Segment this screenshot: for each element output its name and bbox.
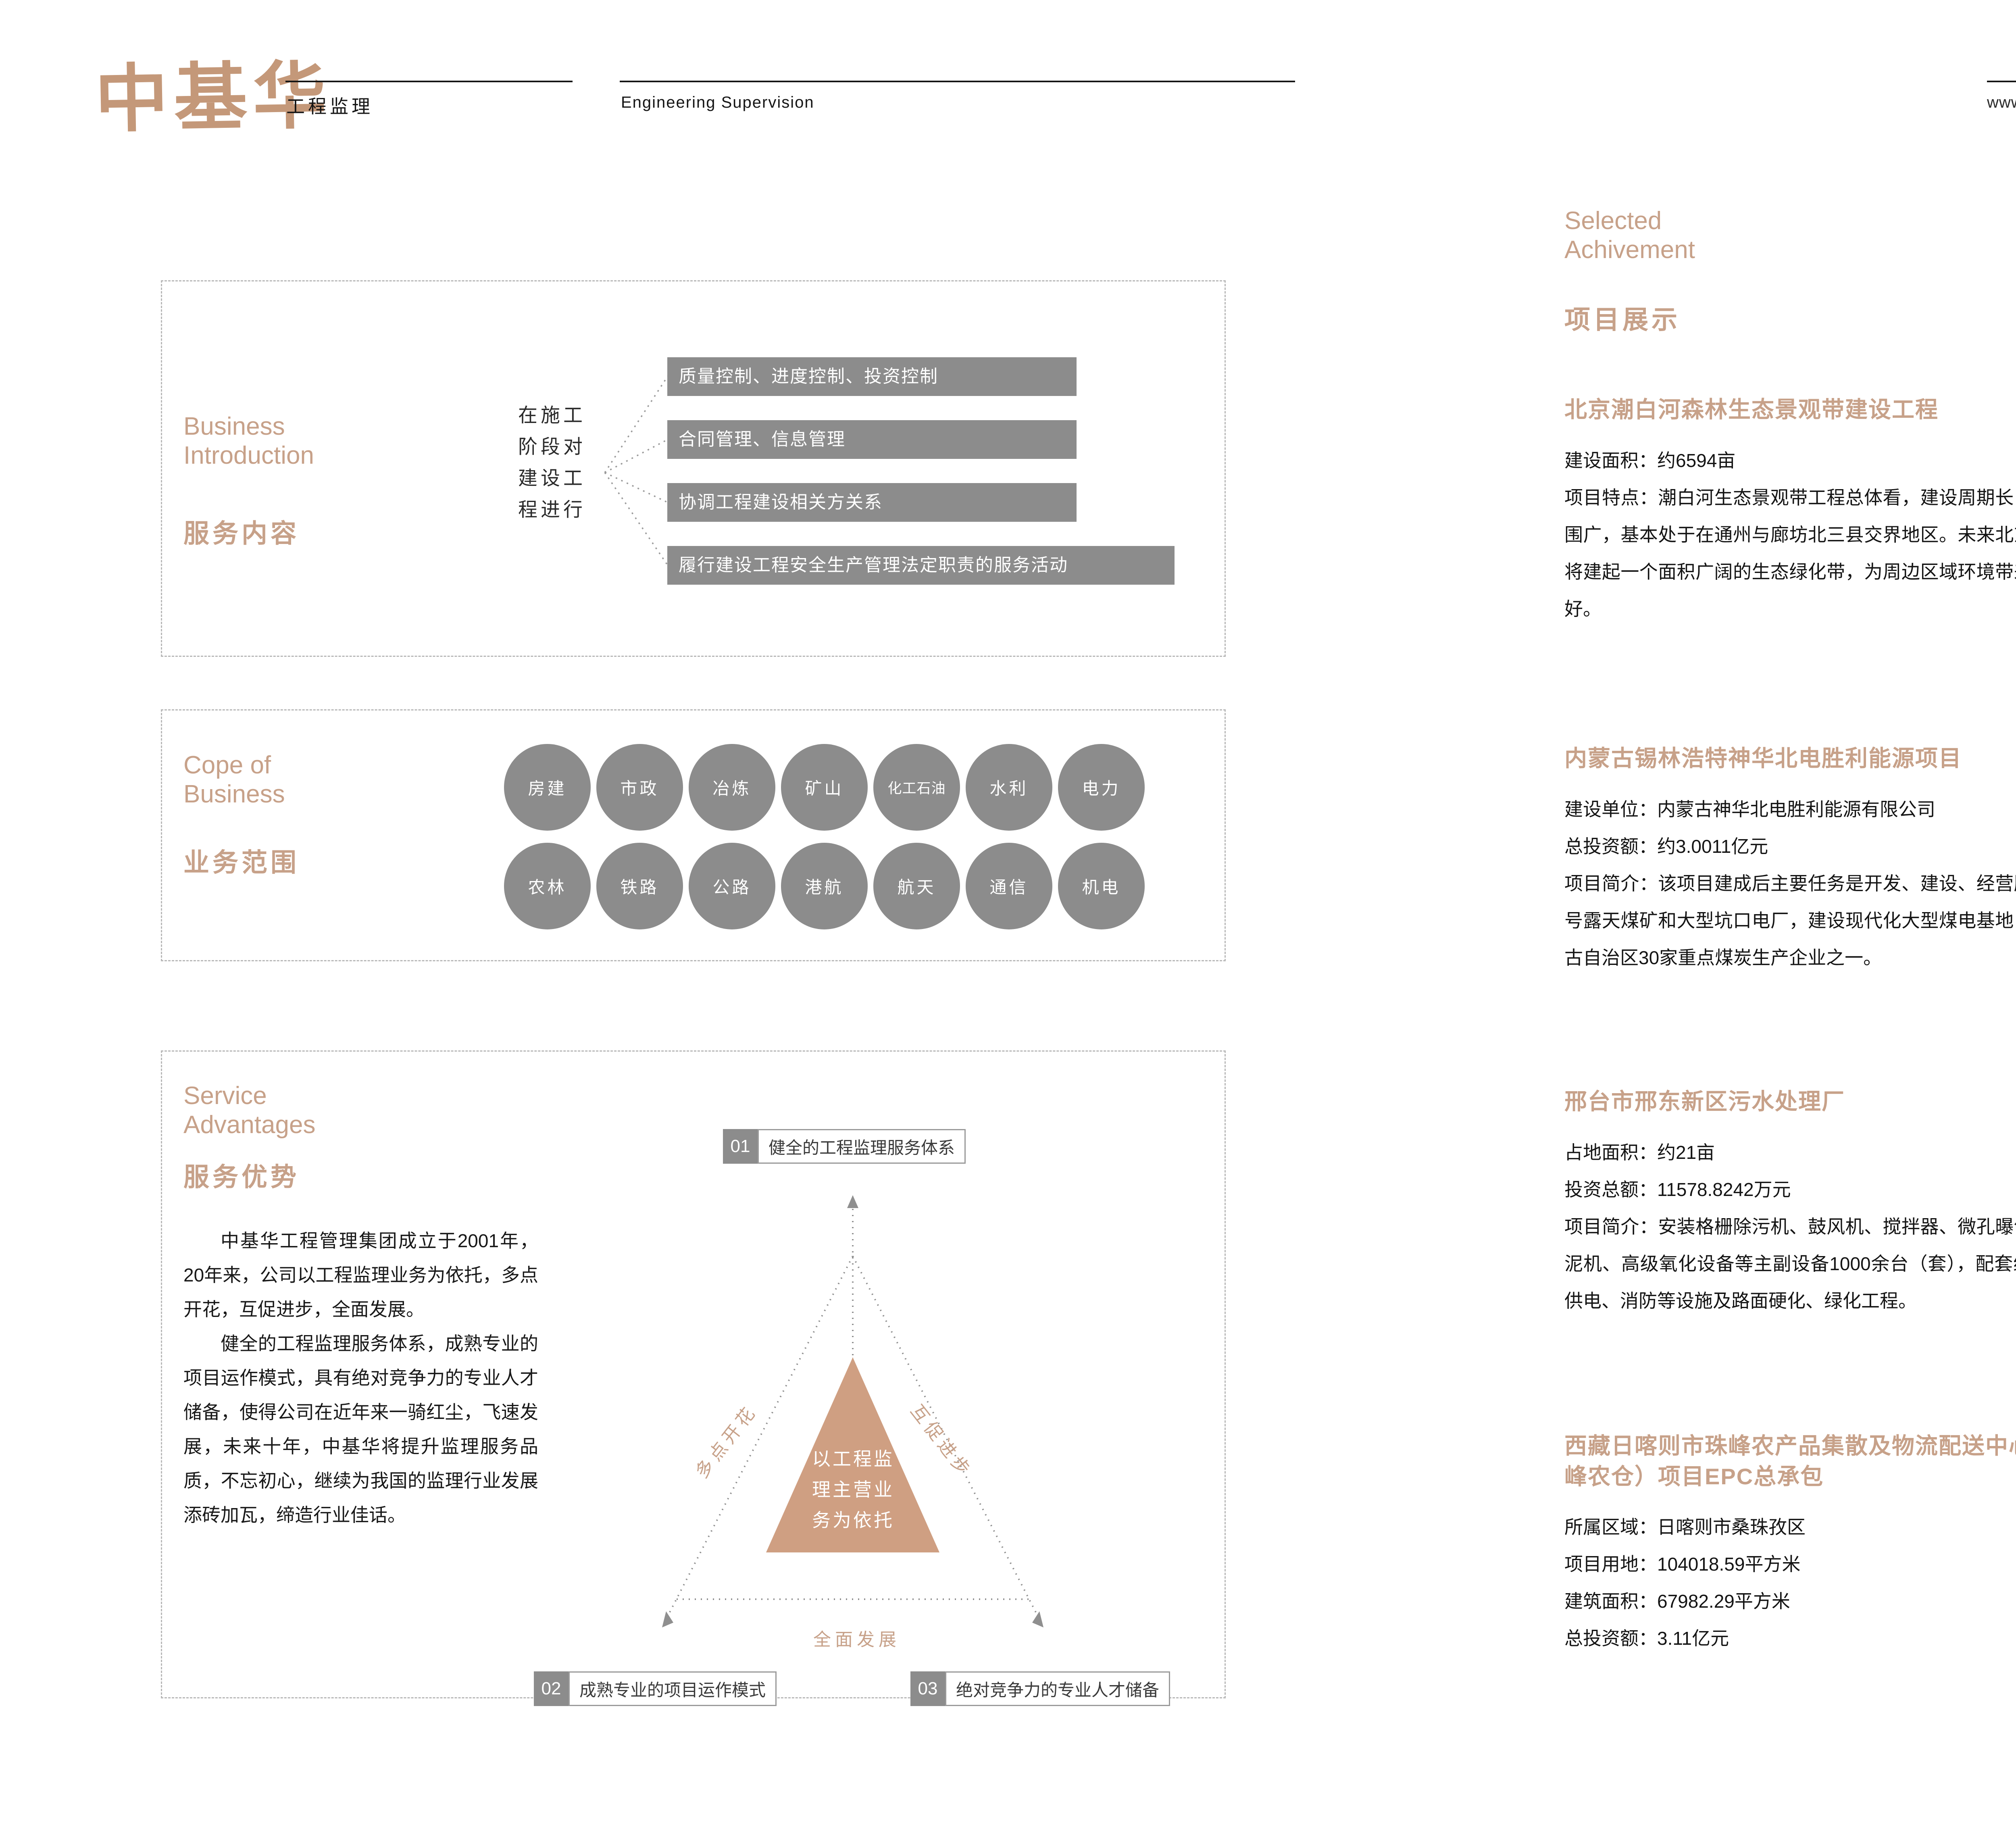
business-intro-title-en: Business Introduction	[183, 412, 353, 470]
header-divider-right	[1987, 81, 2016, 82]
scope-circle: 矿山	[781, 744, 868, 831]
brochure-spread: 中基华 工程监理 Engineering Supervision www.zho…	[0, 0, 2016, 1848]
achievement-title-en: Selected Achivement	[1564, 206, 1742, 265]
project-1: 北京潮白河森林生态景观带建设工程 建设面积：约6594亩 项目特点：潮白河生态景…	[1564, 394, 2016, 627]
scope-circle: 铁路	[596, 843, 683, 929]
project-4-line: 项目用地：104018.59平方米	[1564, 1546, 2016, 1583]
flow-box-4: 履行建设工程安全生产管理法定职责的服务活动	[667, 546, 1175, 585]
project-3: 邢台市邢东新区污水处理厂 占地面积：约21亩 投资总额：11578.8242万元…	[1564, 1086, 2016, 1319]
scope-circle: 通信	[966, 843, 1052, 929]
flow-box-1: 质量控制、进度控制、投资控制	[667, 357, 1077, 396]
scope-circle: 水利	[966, 744, 1052, 831]
project-3-line: 项目简介：安装格栅除污机、鼓风机、搅拌器、微孔曝气器、刮泥机、高级氧化设备等主副…	[1564, 1208, 2016, 1319]
advantage-number-3: 03	[910, 1671, 945, 1706]
service-paragraphs: 中基华工程管理集团成立于2001年，20年来，公司以工程监理业务为依托，多点开花…	[183, 1224, 538, 1532]
scope-circle: 港航	[781, 843, 868, 929]
service-paragraph-2: 健全的工程监理服务体系，成熟专业的项目运作模式，具有绝对竞争力的专业人才储备，使…	[183, 1327, 538, 1532]
project-3-line: 投资总额：11578.8242万元	[1564, 1171, 2016, 1208]
scope-circles-row-1: 房建 市政 冶炼 矿山 化工石油 水利 电力	[504, 744, 1145, 831]
project-4-line: 所属区域：日喀则市桑珠孜区	[1564, 1508, 2016, 1546]
project-3-title: 邢台市邢东新区污水处理厂	[1564, 1086, 2016, 1117]
scope-circle: 电力	[1058, 744, 1145, 831]
header-divider-mid	[620, 81, 1295, 82]
header-tagline: Engineering Supervision	[621, 94, 814, 112]
project-4-line: 建筑面积：67982.29平方米	[1564, 1583, 2016, 1620]
project-1-body: 建设面积：约6594亩 项目特点：潮白河生态景观带工程总体看，建设周期长，辐射范…	[1564, 442, 2016, 627]
advantage-label-3: 绝对竞争力的专业人才储备	[945, 1671, 1170, 1706]
website-url: www.zhongjihua.com.cn	[1987, 94, 2016, 112]
business-intro-title-cn: 服务内容	[183, 513, 300, 550]
arrow-up-icon	[847, 1195, 858, 1208]
scope-circle: 农林	[504, 843, 591, 929]
advantage-item-3: 03 绝对竞争力的专业人才储备	[910, 1671, 1170, 1706]
project-2-line: 总投资额：约3.0011亿元	[1564, 828, 2016, 865]
project-2: 内蒙古锡林浩特神华北电胜利能源项目 建设单位：内蒙古神华北电胜利能源有限公司 总…	[1564, 743, 2016, 976]
advantage-label-2: 成熟专业的项目运作模式	[569, 1671, 777, 1706]
company-logo: 中基华	[94, 36, 333, 146]
project-2-title: 内蒙古锡林浩特神华北电胜利能源项目	[1564, 743, 2016, 774]
project-1-line: 建设面积：约6594亩	[1564, 442, 2016, 479]
scope-circle: 市政	[596, 744, 683, 831]
project-3-line: 占地面积：约21亩	[1564, 1134, 2016, 1171]
flow-box-3: 协调工程建设相关方关系	[667, 483, 1077, 522]
advantage-number-1: 01	[723, 1129, 758, 1164]
logo-caption: 工程监理	[286, 92, 373, 119]
advantage-label-1: 健全的工程监理服务体系	[758, 1129, 966, 1164]
advantage-item-1: 01 健全的工程监理服务体系	[723, 1129, 966, 1164]
triangle-edge-bottom: 全面发展	[796, 1625, 917, 1651]
project-4-title: 西藏日喀则市珠峰农产品集散及物流配送中心（珠峰农仓）项目EPC总承包	[1564, 1431, 2016, 1492]
project-2-line: 建设单位：内蒙古神华北电胜利能源有限公司	[1564, 791, 2016, 828]
triangle-diagram	[629, 1181, 1105, 1653]
project-2-body: 建设单位：内蒙古神华北电胜利能源有限公司 总投资额：约3.0011亿元 项目简介…	[1564, 791, 2016, 976]
scope-circle: 冶炼	[689, 744, 775, 831]
triangle-center-text: 以工程监理主营业务为依托	[810, 1444, 896, 1535]
arrow-down-left-icon	[662, 1611, 673, 1627]
scope-circle: 公路	[689, 843, 775, 929]
service-paragraph-1: 中基华工程管理集团成立于2001年，20年来，公司以工程监理业务为依托，多点开花…	[183, 1224, 538, 1327]
scope-title-en: Cope of Business	[183, 751, 321, 809]
scope-circle: 机电	[1058, 843, 1145, 929]
scope-circle: 房建	[504, 744, 591, 831]
advantage-number-2: 02	[534, 1671, 569, 1706]
service-title-en: Service Advantages	[183, 1081, 353, 1140]
scope-title-cn: 业务范围	[183, 842, 300, 879]
service-title-cn: 服务优势	[183, 1156, 300, 1194]
project-4-body: 所属区域：日喀则市桑珠孜区 项目用地：104018.59平方米 建筑面积：679…	[1564, 1508, 2016, 1657]
project-1-line: 项目特点：潮白河生态景观带工程总体看，建设周期长，辐射范围广，基本处于在通州与廊…	[1564, 479, 2016, 627]
header-divider-left	[285, 81, 573, 82]
arrow-down-right-icon	[1032, 1611, 1043, 1627]
project-3-body: 占地面积：约21亩 投资总额：11578.8242万元 项目简介：安装格栅除污机…	[1564, 1134, 2016, 1319]
project-4: 西藏日喀则市珠峰农产品集散及物流配送中心（珠峰农仓）项目EPC总承包 所属区域：…	[1564, 1431, 2016, 1657]
project-1-title: 北京潮白河森林生态景观带建设工程	[1564, 394, 2016, 425]
scope-circle: 化工石油	[873, 744, 960, 831]
project-4-line: 总投资额：3.11亿元	[1564, 1620, 2016, 1657]
project-2-line: 项目简介：该项目建成后主要任务是开发、建设、经营胜利西一号露天煤矿和大型坑口电厂…	[1564, 865, 2016, 976]
flow-box-2: 合同管理、信息管理	[667, 420, 1077, 459]
scope-circle: 航天	[873, 843, 960, 929]
scope-circles-row-2: 农林 铁路 公路 港航 航天 通信 机电	[504, 843, 1145, 929]
achievement-title-cn: 项目展示	[1564, 299, 1681, 336]
advantage-item-2: 02 成熟专业的项目运作模式	[534, 1671, 777, 1706]
